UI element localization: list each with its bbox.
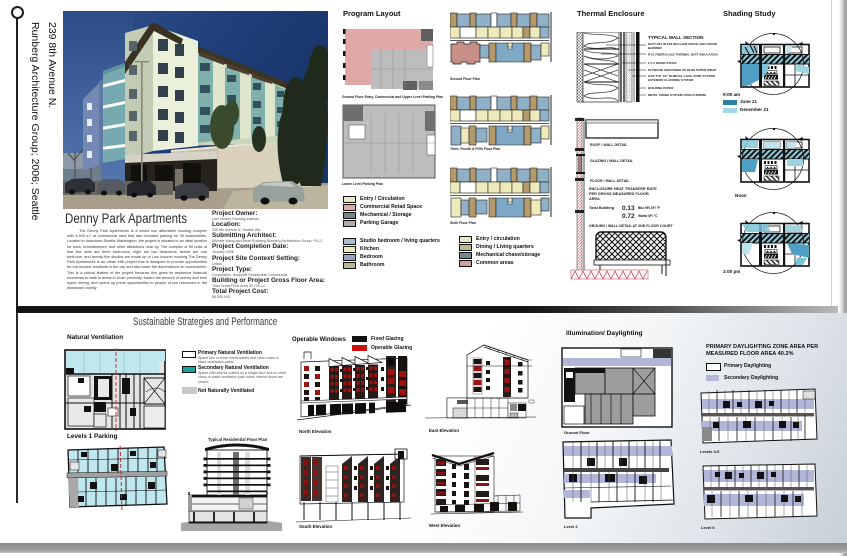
svg-text:ROOF / WALL DETAIL: ROOF / WALL DETAIL: [590, 143, 628, 147]
svg-text:Btu/ HR-SF/ °F: Btu/ HR-SF/ °F: [638, 206, 660, 210]
svg-text:0.13: 0.13: [622, 205, 635, 212]
svg-text:R-21 FIBERGLASS THERMAL BATT I: R-21 FIBERGLASS THERMAL BATT INSULATION: [648, 53, 718, 57]
svg-text:0.72: 0.72: [622, 213, 635, 220]
svg-text:METAL SIDING SYSTEM OVER FURRI: METAL SIDING SYSTEM OVER FURRING: [648, 93, 707, 97]
svg-text:2 X 6 WOOD STUDS: 2 X 6 WOOD STUDS: [648, 61, 677, 65]
svg-text:TYPICAL WALL SECTION: TYPICAL WALL SECTION: [648, 35, 704, 40]
svg-text:BARRIER: BARRIER: [648, 46, 663, 50]
svg-text:BUILDING PAPER: BUILDING PAPER: [648, 86, 674, 90]
svg-text:Watts/ M²/ °C: Watts/ M²/ °C: [638, 214, 658, 218]
svg-text:PER GROSS MEASURED FLOOR: PER GROSS MEASURED FLOOR: [589, 192, 649, 196]
svg-text:ENCLOSURE HEAT TRANSFER RATE: ENCLOSURE HEAT TRANSFER RATE: [589, 187, 657, 191]
svg-text:Total Building: Total Building: [589, 206, 615, 210]
svg-text:GLAZING / WALL DETAIL: GLAZING / WALL DETAIL: [590, 159, 634, 163]
svg-text:FLOOR / WALL DETAIL: FLOOR / WALL DETAIL: [590, 179, 630, 183]
svg-text:AREA: AREA: [589, 197, 600, 201]
svg-text:EXTERIOR CLADDING SYSTEM: EXTERIOR CLADDING SYSTEM: [648, 78, 694, 82]
svg-text:GROUND / WALL DETAIL AT 2ND FL: GROUND / WALL DETAIL AT 2ND FLOOR COURT: [589, 224, 673, 228]
svg-text:PLYWOOD SHEATHING W/ BLDG PAPE: PLYWOOD SHEATHING W/ BLDG PAPER WRAP: [648, 68, 716, 72]
